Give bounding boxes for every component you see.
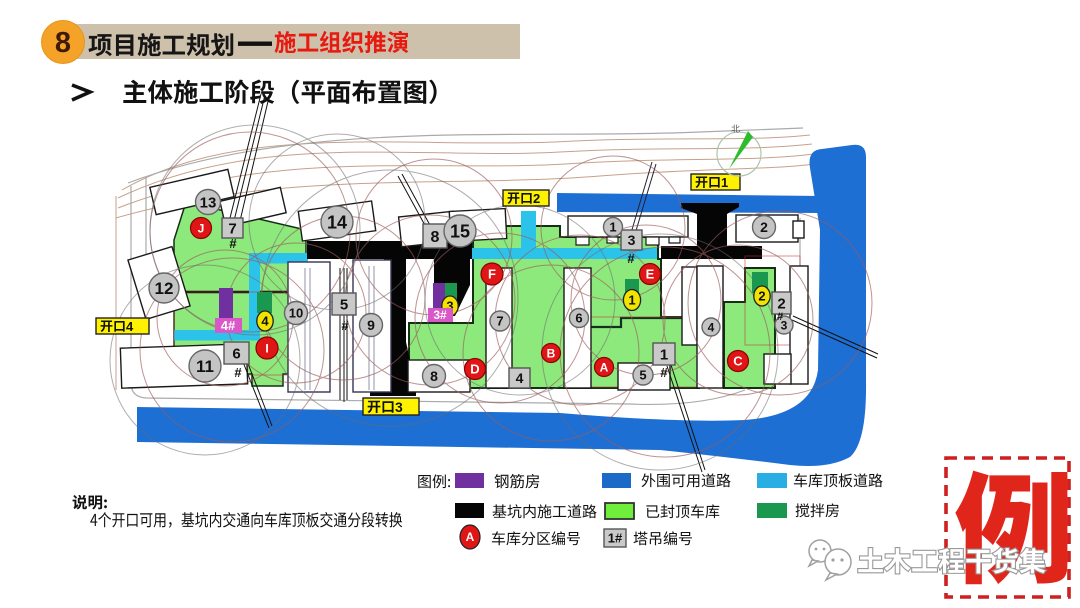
svg-text:7: 7	[496, 314, 503, 329]
svg-text:C: C	[733, 354, 743, 369]
svg-text:D: D	[470, 362, 479, 377]
svg-text:7: 7	[228, 220, 236, 237]
svg-text:1: 1	[660, 346, 668, 363]
svg-text:2: 2	[777, 295, 785, 312]
svg-text:F: F	[488, 267, 496, 282]
svg-text:10: 10	[289, 306, 303, 321]
svg-text:#: #	[660, 365, 668, 380]
svg-text:#: #	[229, 236, 237, 251]
svg-text:3#: 3#	[433, 308, 447, 322]
svg-text:A: A	[600, 360, 609, 374]
svg-text:9: 9	[367, 317, 375, 333]
svg-text:J: J	[198, 221, 205, 235]
svg-text:4#: 4#	[221, 318, 236, 333]
svg-text:8: 8	[430, 368, 438, 384]
svg-text:A: A	[466, 530, 475, 544]
svg-text:8: 8	[431, 229, 440, 246]
svg-text:4: 4	[126, 319, 134, 334]
svg-text:#: #	[341, 318, 349, 333]
svg-text:2: 2	[758, 289, 765, 304]
svg-text:6: 6	[575, 311, 582, 326]
svg-text:6: 6	[232, 345, 240, 362]
svg-text:15: 15	[450, 222, 470, 242]
svg-text:12: 12	[155, 279, 174, 298]
svg-text:13: 13	[200, 194, 217, 211]
svg-text:5: 5	[340, 296, 348, 313]
svg-text:2: 2	[533, 191, 540, 206]
svg-text:#: #	[777, 311, 783, 323]
svg-text:4: 4	[708, 320, 715, 334]
svg-text:1: 1	[721, 175, 728, 190]
svg-text:B: B	[547, 346, 556, 360]
svg-text:#: #	[234, 365, 242, 380]
svg-text:I: I	[265, 341, 268, 355]
svg-text:5: 5	[639, 368, 646, 383]
svg-text:14: 14	[327, 213, 347, 233]
svg-text:#: #	[627, 251, 635, 266]
svg-text:2: 2	[760, 219, 768, 235]
svg-text:1: 1	[628, 293, 635, 308]
svg-text:4: 4	[516, 370, 524, 386]
svg-text:1: 1	[609, 220, 616, 235]
svg-text:8: 8	[55, 27, 71, 59]
svg-text:3: 3	[628, 232, 636, 248]
svg-text:4: 4	[261, 314, 269, 329]
svg-text:E: E	[646, 267, 655, 282]
svg-text:11: 11	[196, 357, 214, 376]
svg-text:3: 3	[395, 399, 403, 415]
svg-text:1#: 1#	[608, 531, 623, 546]
